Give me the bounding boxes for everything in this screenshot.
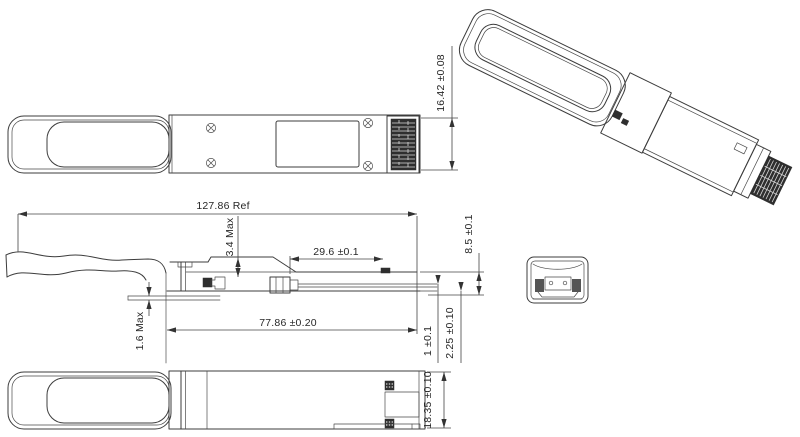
dimension-body-length: 77.86 ±0.20: [167, 317, 417, 333]
dim-rear-height: 8.5 ±0.1: [463, 214, 475, 253]
dim-paddle-offset: 2.25 ±0.10: [444, 307, 456, 359]
dimension-top-height: 16.42 ±0.08: [421, 46, 458, 170]
dimension-paddle-thickness: 1 ±0.1: [422, 275, 441, 363]
dim-latch-height: 3.4 Max: [224, 217, 236, 256]
pull-tab-grip-hole: [47, 122, 169, 167]
edge-connector-pins: [387, 116, 419, 173]
hood-arch: [533, 264, 582, 269]
paddle-key-detail: [381, 268, 390, 273]
dim-paddle-thickness: 1 ±0.1: [422, 326, 434, 356]
dim-overall-length: 127.86 Ref: [196, 200, 249, 212]
dimension-tab-thickness: 1.6 Max: [134, 282, 152, 350]
pull-tab-3d: [454, 4, 631, 132]
emi-spring-right: [572, 279, 581, 292]
pull-tab-outline: [8, 372, 171, 429]
side-view: 127.86 Ref 3.4 Max 29.6 ±0.1 77.86 ±0.20: [6, 200, 484, 363]
label-area: [276, 121, 359, 167]
module-body-side: [128, 257, 437, 363]
dimension-tail-length: 29.6 ±0.1: [290, 246, 383, 274]
bottom-view: 18.35 ±0.10: [8, 371, 451, 429]
top-view: 16.42 ±0.08: [8, 46, 458, 173]
dimension-latch-height: 3.4 Max: [224, 216, 241, 277]
receptacle: [533, 277, 582, 299]
module-body-3d: [642, 96, 758, 195]
dim-body-width: 18.35 ±0.10: [422, 371, 434, 429]
dim-tail-length: 29.6 ±0.1: [313, 246, 359, 258]
dimension-body-width: 18.35 ±0.10: [422, 371, 451, 429]
pull-tab-inner-outline: [12, 120, 169, 169]
dim-body-length: 77.86 ±0.20: [259, 317, 317, 329]
dimension-rear-height: 8.5 ±0.1: [420, 214, 484, 295]
screw-icon: [206, 118, 372, 170]
dimension-overall-length: 127.86 Ref: [18, 200, 417, 334]
latch-block-3d: [601, 73, 672, 153]
pull-tab-side: [6, 252, 166, 280]
technical-drawing-canvas: 16.42 ±0.08: [0, 0, 800, 437]
dim-tab-thickness: 1.6 Max: [134, 311, 146, 350]
dimension-paddle-offset: 2.25 ±0.10: [444, 282, 464, 363]
front-view: [527, 257, 588, 303]
emi-spring-left: [535, 279, 544, 292]
pull-tab-outline: [8, 116, 171, 173]
iso-view: [452, 0, 798, 215]
vent-detail: [385, 381, 419, 428]
drawing-sheet: 16.42 ±0.08: [0, 0, 800, 437]
pull-tab-grip-hole: [47, 378, 169, 423]
gasket-bar: [334, 424, 420, 429]
dim-top-height: 16.42 ±0.08: [435, 54, 447, 112]
